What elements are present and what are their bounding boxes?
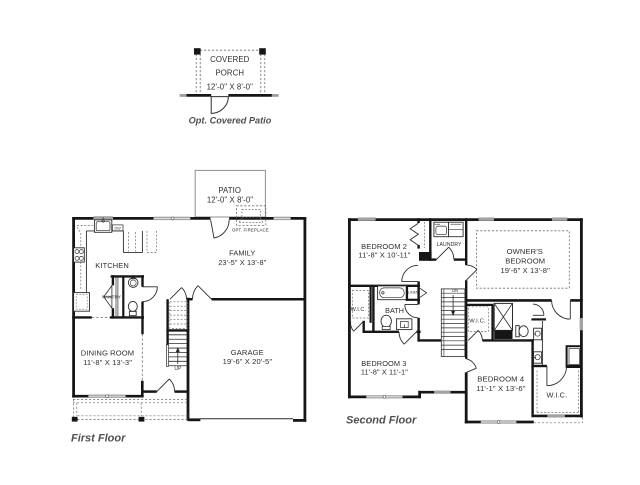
svg-text:BEDROOM 4: BEDROOM 4 (477, 375, 525, 384)
svg-text:First Floor: First Floor (71, 433, 126, 445)
svg-text:PATIO: PATIO (218, 186, 241, 195)
svg-text:W.I.C.: W.I.C. (547, 390, 568, 399)
svg-text:11'-1" X 13'-6": 11'-1" X 13'-6" (476, 384, 526, 393)
svg-text:UP: UP (174, 366, 182, 372)
svg-text:OPT. FIREPLACE: OPT. FIREPLACE (232, 228, 269, 233)
svg-text:KITCHEN: KITCHEN (95, 261, 129, 270)
svg-text:BEDROOM 2: BEDROOM 2 (361, 242, 407, 251)
svg-text:19'-6" X 13'-8": 19'-6" X 13'-8" (500, 266, 550, 275)
svg-text:11'-8" X 11'-1": 11'-8" X 11'-1" (361, 367, 408, 376)
svg-text:PANTRY: PANTRY (102, 295, 121, 300)
svg-text:LINEN: LINEN (408, 291, 419, 295)
svg-text:GARAGE: GARAGE (231, 348, 264, 357)
svg-text:PORCH: PORCH (215, 69, 244, 78)
svg-text:Opt. Covered Patio: Opt. Covered Patio (189, 115, 272, 125)
svg-text:DN: DN (452, 288, 458, 293)
svg-text:DINING ROOM: DINING ROOM (81, 349, 134, 358)
svg-text:OWNER'S: OWNER'S (507, 247, 543, 256)
svg-text:FAMILY: FAMILY (229, 248, 255, 257)
svg-text:BATH: BATH (385, 306, 404, 315)
svg-text:Second Floor: Second Floor (346, 414, 417, 426)
svg-text:W.I.C.: W.I.C. (469, 318, 486, 324)
svg-text:23'-5" X 13'-8": 23'-5" X 13'-8" (218, 258, 266, 267)
svg-text:W.I.C.: W.I.C. (351, 307, 366, 313)
svg-text:12'-0" X 8'-0": 12'-0" X 8'-0" (207, 83, 253, 92)
svg-text:11'-8" X 10'-11": 11'-8" X 10'-11" (358, 251, 410, 260)
svg-text:11'-8" X 13'-3": 11'-8" X 13'-3" (83, 358, 132, 367)
svg-text:LAUNDRY: LAUNDRY (437, 242, 462, 248)
svg-text:19'-6" X 20'-5": 19'-6" X 20'-5" (223, 357, 273, 366)
svg-text:BEDROOM: BEDROOM (505, 256, 545, 265)
svg-text:DW: DW (115, 226, 122, 230)
svg-text:COVERED: COVERED (210, 55, 250, 64)
svg-text:12'-0" X 8'-0": 12'-0" X 8'-0" (207, 195, 253, 204)
